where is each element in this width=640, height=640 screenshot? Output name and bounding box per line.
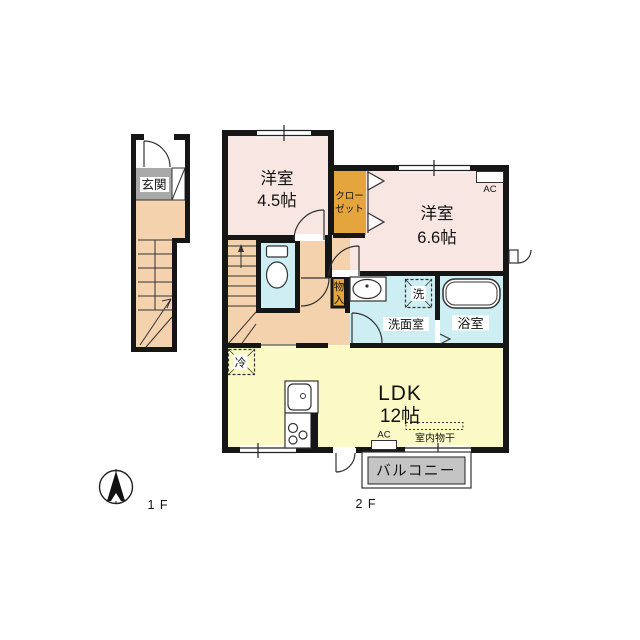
kitchen-counter [285, 381, 318, 448]
door-genkan [144, 133, 174, 167]
west-a-name: 洋室 [261, 169, 294, 188]
door-side-hatch [509, 250, 531, 263]
ac-ldk-label: AC [377, 430, 390, 441]
compass [100, 469, 133, 504]
closet-label-2: ゼット [335, 203, 364, 215]
balcony-label: バルコニー [376, 464, 456, 480]
ldk-size: 12帖 [380, 405, 420, 427]
genkan-label: 玄関 [141, 177, 166, 192]
ldk-hall-threshold [261, 344, 296, 346]
washroom-label: 洗面室 [388, 317, 424, 332]
floor-label-2f: 2 F [355, 497, 376, 511]
west-b-size: 6.6帖 [417, 228, 456, 247]
ldk-name: LDK [378, 382, 422, 405]
storage-label-1: 物 [334, 280, 345, 293]
west-b-name: 洋室 [421, 204, 454, 223]
indoor-drying-label: 室内物干 [415, 432, 455, 445]
washer-label: 洗 [413, 288, 425, 301]
floor-label-1f: 1 F [147, 498, 168, 512]
closet-label-1: クロー [335, 191, 364, 202]
toilet-fixture [267, 246, 288, 288]
ldk-floor [226, 346, 503, 447]
ac-bedroom-label: AC [483, 184, 496, 195]
washroom-sink [350, 277, 386, 301]
kitchen-sink [288, 384, 311, 410]
bathtub [443, 279, 500, 308]
ac-unit-ldk [372, 441, 397, 450]
genkan-hall-floor [136, 200, 185, 238]
floor-plan-drawing: 玄関 洋室 4.5帖 洋室 6.6帖 クロー ゼット 物 入 洗面室 浴室 洗 … [0, 0, 640, 640]
fridge-label: 冷 [235, 357, 247, 370]
west-a-size: 4.5帖 [257, 191, 296, 210]
floor-plan-canvas: 玄関 洋室 4.5帖 洋室 6.6帖 クロー ゼット 物 入 洗面室 浴室 洗 … [0, 0, 640, 640]
bathroom-label: 浴室 [457, 316, 483, 331]
storage-label-2: 入 [334, 294, 345, 306]
door-balcony [334, 448, 356, 472]
ac-unit-bedroom [477, 172, 504, 183]
